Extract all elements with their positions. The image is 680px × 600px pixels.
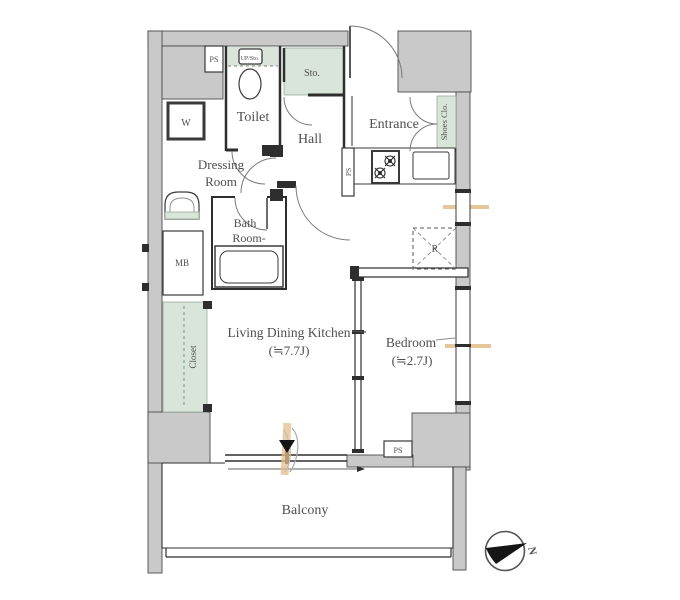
meter-box-nub	[142, 244, 149, 252]
dressing-door-jamb-top	[270, 145, 283, 157]
kitchen-window-cap	[455, 222, 471, 226]
sliding-partition	[352, 277, 364, 453]
bedroom-label-line1: Bedroom	[386, 335, 437, 350]
kitchen-window	[456, 191, 470, 225]
storage-door-arc	[284, 97, 312, 125]
closet-label: Closet	[188, 345, 198, 369]
entrance-label: Entrance	[369, 117, 419, 132]
storage-label: Sto.	[304, 68, 320, 79]
compass-north-label: N	[525, 546, 538, 556]
hall-label: Hall	[298, 132, 322, 147]
toilet-bowl-icon	[239, 69, 261, 99]
shoes-closet-label: Shoes Clo.	[439, 104, 449, 141]
closet-jamb-top	[203, 301, 212, 309]
refrigerator-label: R	[432, 244, 439, 255]
washing-machine-label: W	[181, 118, 191, 129]
windows	[443, 189, 491, 405]
bath-room-label-line1: Bath	[234, 216, 257, 230]
ps-top-label: PS	[210, 55, 219, 64]
meter-box-label: MB	[175, 258, 189, 268]
wall-top-right-block	[398, 31, 471, 92]
wall-top	[148, 31, 348, 46]
bathtub-inner	[220, 251, 278, 283]
upper-storage-label: UP/Sto.	[241, 56, 260, 62]
compass-icon: N	[486, 532, 539, 571]
bedroom-leader-line	[436, 338, 455, 340]
partition-tick	[352, 449, 364, 453]
kitchen-sink	[413, 152, 449, 179]
floor-plan-page: Toilet Hall Entrance Sto. UP/Sto. Shoes …	[0, 0, 680, 600]
dressing-door-arc	[241, 158, 276, 193]
closet-area	[163, 302, 207, 412]
partition-tick	[352, 277, 364, 281]
balcony-label: Balcony	[282, 503, 329, 518]
washbasin-counter-strip	[165, 212, 199, 219]
bedroom-label-line2: (≒2.7J)	[392, 353, 433, 368]
wall-left	[148, 31, 162, 573]
ldk-label-line1: Living Dining Kitchen	[228, 325, 351, 340]
floor-plan-drawing: Toilet Hall Entrance Sto. UP/Sto. Shoes …	[0, 0, 680, 600]
ldk-label-line2: (≒7.7J)	[269, 343, 310, 358]
wall-right-mid	[456, 225, 470, 288]
meter-box-nub	[142, 283, 149, 291]
ldk-door-wall	[277, 181, 296, 188]
bedroom-window-cap	[455, 286, 471, 290]
bedroom-top-wall	[356, 268, 468, 277]
bedroom-window-tick	[455, 344, 471, 347]
wall-bedroom-corner	[412, 413, 470, 467]
dressing-room-label-line1: Dressing	[198, 157, 245, 172]
entry-marker-triangle-icon	[279, 440, 295, 453]
dressing-room-label-line2: Room	[205, 174, 237, 189]
wall-balcony-right	[453, 467, 466, 570]
ps-kitchen-label: PS	[344, 168, 353, 176]
entrance-door-arc	[350, 26, 402, 78]
closet-jamb-bottom	[203, 404, 212, 412]
partition-tick	[352, 376, 364, 380]
toilet-label: Toilet	[237, 110, 270, 125]
kitchen-window-cap	[455, 189, 471, 193]
wall-bottom-left-block	[148, 412, 210, 463]
bath-room-label-line2: Room-	[232, 231, 265, 245]
bedroom-window-cap	[455, 401, 471, 405]
curtain-swirl	[290, 428, 298, 472]
dressing-door-jamb-bottom	[270, 189, 283, 201]
ps-bottom-label: PS	[394, 446, 403, 455]
wall-right-upper	[456, 92, 470, 191]
